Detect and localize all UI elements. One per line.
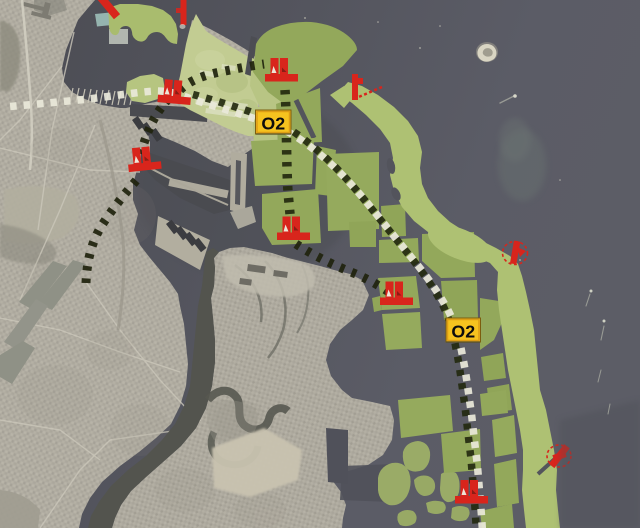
svg-text:O2: O2 <box>451 322 475 342</box>
svg-text:O2: O2 <box>261 114 285 134</box>
